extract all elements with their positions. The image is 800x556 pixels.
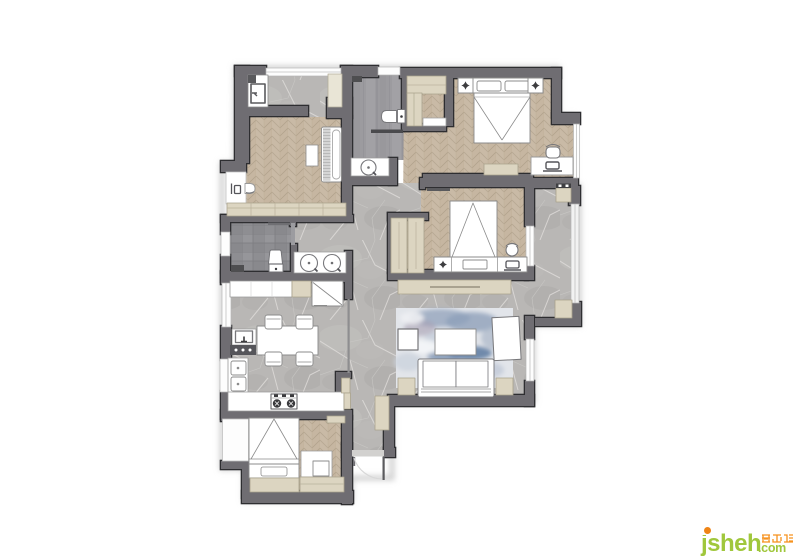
svg-text:.com: .com — [758, 541, 786, 555]
